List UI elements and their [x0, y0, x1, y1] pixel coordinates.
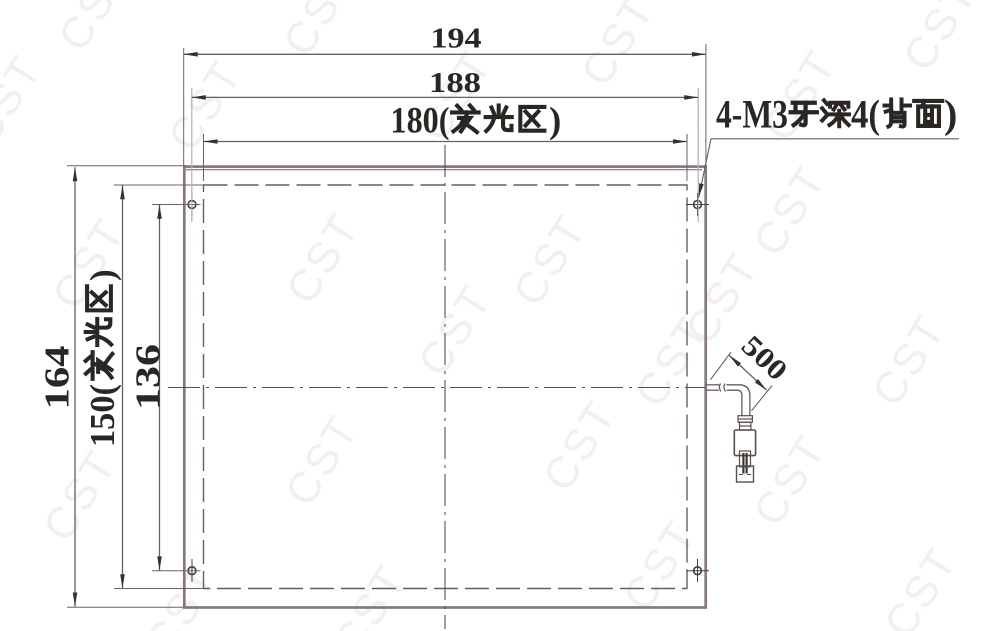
svg-text:CST: CST	[894, 0, 987, 79]
svg-text:164: 164	[38, 346, 77, 410]
svg-text:CST: CST	[34, 441, 127, 549]
svg-text:CST: CST	[324, 556, 417, 631]
svg-text:180(: 180(	[391, 101, 450, 142]
svg-text:4-M3: 4-M3	[716, 92, 788, 137]
svg-text:CST: CST	[409, 276, 502, 384]
svg-text:): )	[83, 269, 122, 281]
svg-text:188: 188	[429, 68, 481, 99]
svg-text:500: 500	[735, 330, 793, 388]
svg-text:194: 194	[431, 24, 482, 55]
svg-text:CST: CST	[534, 391, 627, 499]
svg-text:CST: CST	[276, 406, 369, 514]
svg-text:): )	[944, 92, 957, 137]
svg-text:CST: CST	[875, 538, 968, 631]
svg-text:CST: CST	[136, 556, 229, 631]
svg-text:CST: CST	[159, 51, 252, 159]
svg-text:CST: CST	[504, 206, 597, 314]
svg-text:CST: CST	[744, 426, 837, 534]
svg-text:CST: CST	[572, 0, 665, 94]
svg-text:CST: CST	[0, 46, 52, 154]
svg-text:CST: CST	[277, 204, 370, 312]
svg-text:CST: CST	[863, 306, 956, 414]
svg-text:150(: 150(	[83, 384, 122, 447]
svg-text:CST: CST	[49, 0, 142, 59]
svg-text:CST: CST	[614, 511, 707, 619]
svg-text:CST: CST	[744, 156, 837, 264]
svg-text:): )	[549, 101, 561, 142]
svg-text:136: 136	[129, 344, 168, 410]
svg-text:4(: 4(	[851, 92, 880, 137]
